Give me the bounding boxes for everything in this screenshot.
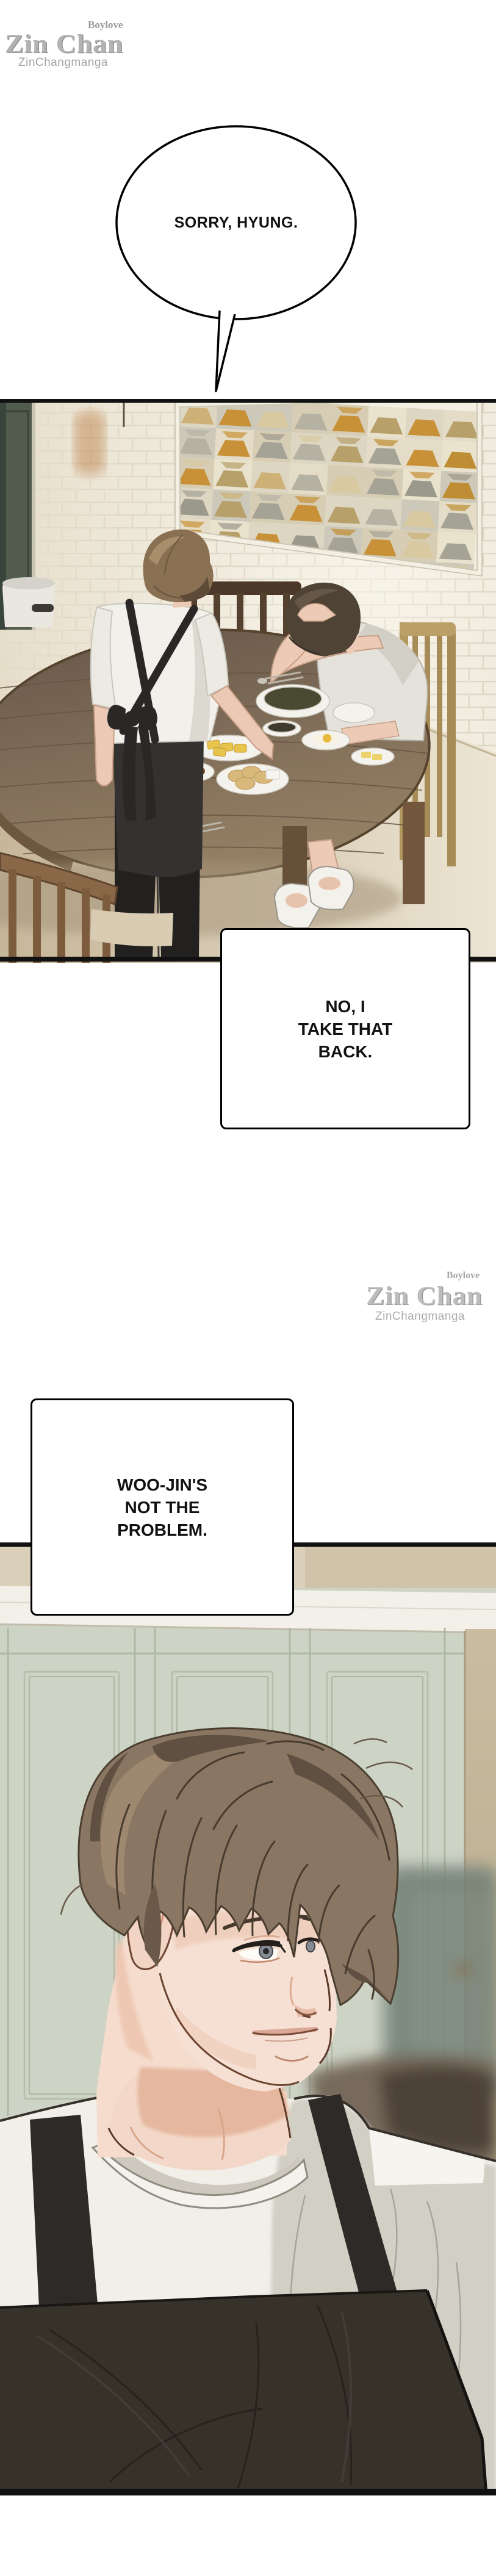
svg-text:SORRY, HYUNG.: SORRY, HYUNG. [174, 214, 298, 231]
